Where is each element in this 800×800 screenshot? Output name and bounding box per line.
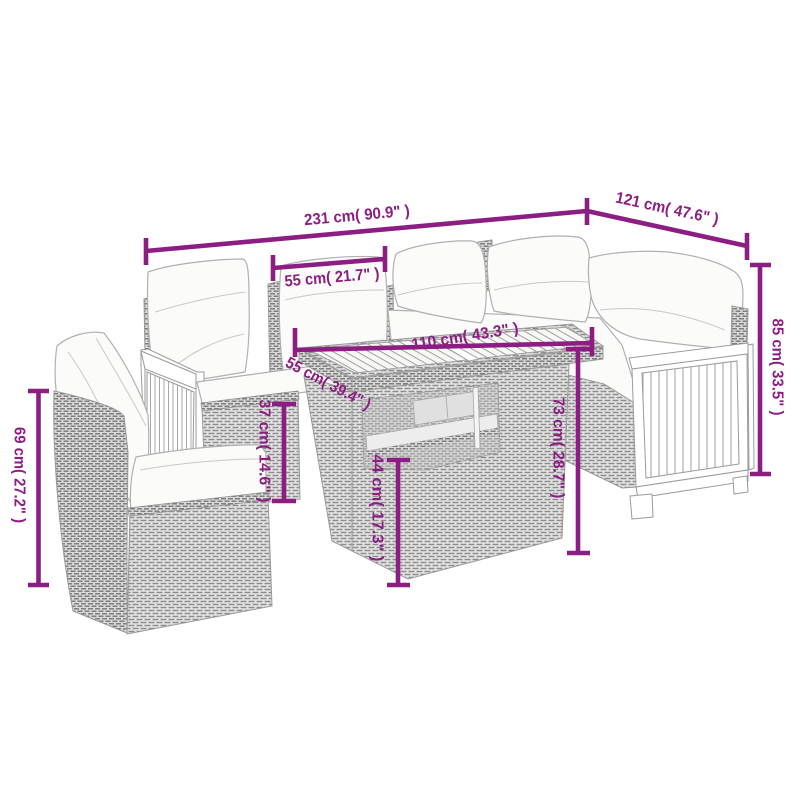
svg-text:73 cm( 28.7" ): 73 cm( 28.7" ) [550,398,567,499]
svg-text:85 cm( 33.5" ): 85 cm( 33.5" ) [769,319,786,416]
svg-text:69 cm( 27.2" ): 69 cm( 27.2" ) [11,427,28,523]
svg-text:37 cm( 14.6" ): 37 cm( 14.6" ) [256,400,273,503]
svg-text:44 cm( 17.3" ): 44 cm( 17.3" ) [369,455,386,562]
svg-text:231 cm( 90.9" ): 231 cm( 90.9" ) [303,203,410,230]
